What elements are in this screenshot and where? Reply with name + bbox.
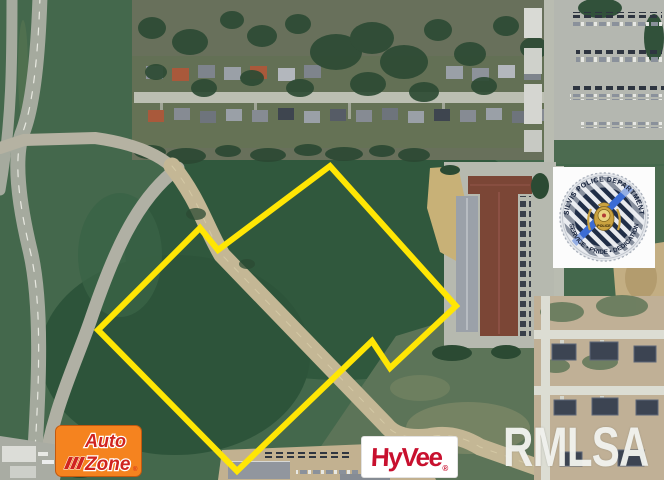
subdivision-street <box>534 386 664 395</box>
badge-center-label: POLICE <box>597 224 611 228</box>
parking-lot <box>524 0 664 166</box>
autozone-logo: Auto Zone ® <box>55 425 142 477</box>
subdivision-street <box>534 330 664 339</box>
residential-neighborhood <box>132 0 572 164</box>
police-seal: POLICE SILVIS POLICE DEPARTMENT SERVICE … <box>556 170 652 266</box>
hyvee-logo: HyVee ® <box>361 436 458 478</box>
side-street <box>544 0 554 166</box>
rmlsa-watermark: RMLSA <box>503 419 649 475</box>
police-seal-plaque: POLICE SILVIS POLICE DEPARTMENT SERVICE … <box>553 167 655 268</box>
autozone-reg-mark: ® <box>133 466 138 473</box>
autozone-word-auto: Auto <box>84 431 126 451</box>
hyvee-reg-mark: ® <box>442 464 448 473</box>
autozone-word-zone: Zone <box>84 454 131 475</box>
aerial-listing-photo: Auto Zone ® HyVee ® RMLSA <box>0 0 664 480</box>
hyvee-wordmark: HyVee <box>370 444 442 470</box>
